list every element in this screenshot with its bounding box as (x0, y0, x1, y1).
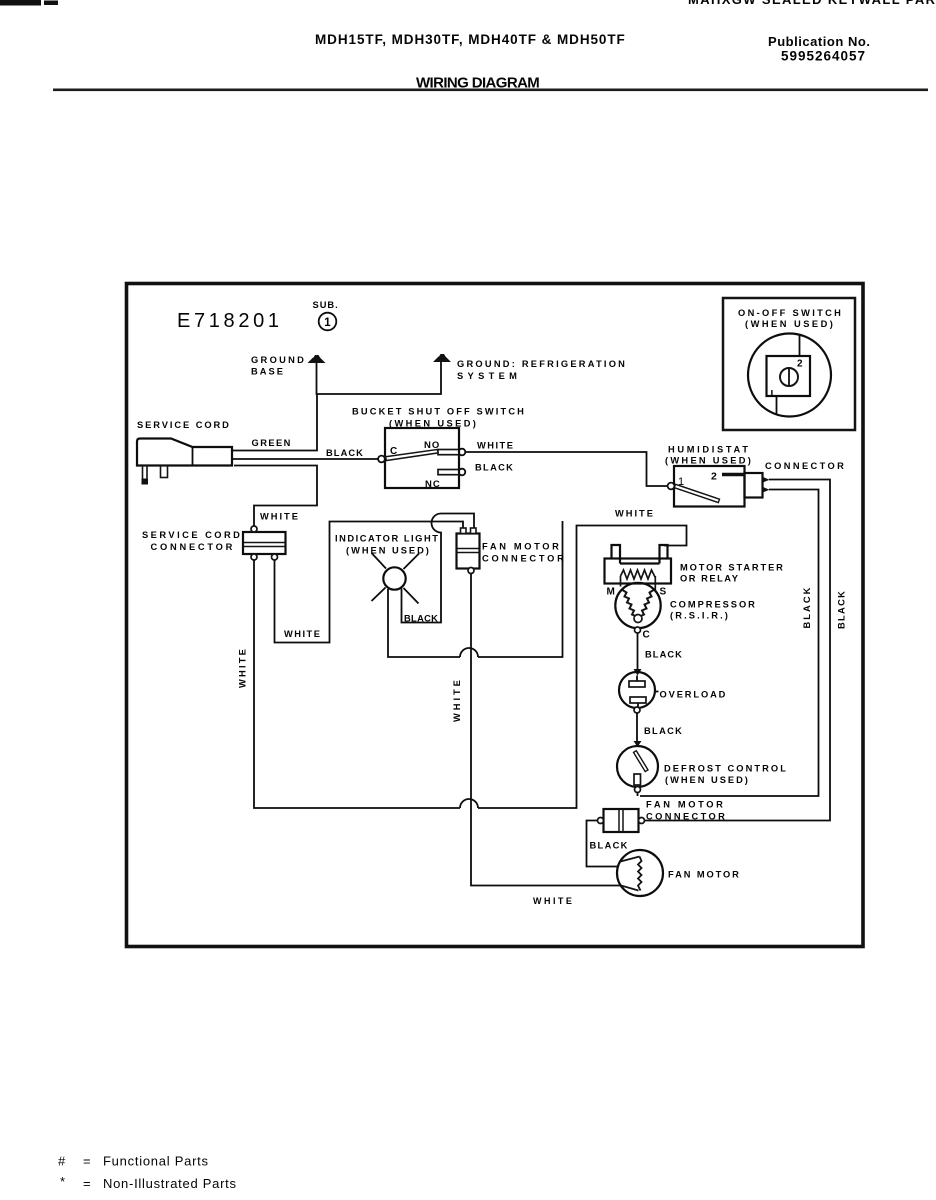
svg-text:OVERLOAD: OVERLOAD (660, 690, 727, 700)
svg-text:ON-OFF SWITCH: ON-OFF SWITCH (738, 308, 842, 318)
svg-text:GREEN: GREEN (252, 438, 292, 448)
svg-text:COMPRESSOR: COMPRESSOR (670, 600, 756, 610)
svg-text:2: 2 (711, 471, 717, 483)
svg-text:*: * (60, 1174, 65, 1189)
svg-text:NC: NC (425, 479, 441, 490)
svg-text:Functional Parts: Functional Parts (103, 1154, 209, 1169)
svg-text:Publication No.: Publication No. (768, 34, 870, 49)
svg-text:=: = (83, 1176, 91, 1191)
svg-text:WHITE: WHITE (284, 629, 321, 639)
svg-text:S: S (660, 587, 667, 598)
svg-text:SUB.: SUB. (313, 300, 339, 310)
svg-text:WHITE: WHITE (533, 896, 573, 906)
svg-text:E718201: E718201 (177, 310, 283, 332)
svg-text:HUMIDISTAT: HUMIDISTAT (668, 445, 749, 455)
svg-text:#: # (58, 1154, 66, 1169)
svg-text:5995264057: 5995264057 (781, 49, 865, 64)
svg-text:2: 2 (797, 359, 803, 370)
svg-text:WHITE: WHITE (477, 441, 514, 451)
svg-text:OR RELAY: OR RELAY (680, 574, 739, 584)
svg-text:GROUND: REFRIGERATION: GROUND: REFRIGERATION (457, 359, 626, 369)
svg-text:C: C (643, 630, 650, 641)
svg-text:(WHEN USED): (WHEN USED) (665, 775, 749, 785)
svg-text:FAN MOTOR: FAN MOTOR (482, 542, 560, 552)
svg-text:M: M (607, 587, 615, 598)
svg-text:=: = (83, 1154, 91, 1169)
svg-text:MOTOR STARTER: MOTOR STARTER (680, 563, 784, 573)
svg-text:BLACK: BLACK (802, 587, 812, 629)
svg-text:BLACK: BLACK (645, 650, 683, 660)
svg-text:CONNECTOR: CONNECTOR (482, 554, 565, 564)
svg-text:BUCKET SHUT OFF SWITCH: BUCKET SHUT OFF SWITCH (352, 407, 525, 417)
svg-text:NO: NO (424, 440, 440, 451)
svg-text:Non-Illustrated Parts: Non-Illustrated Parts (103, 1176, 237, 1191)
svg-text:DEFROST CONTROL: DEFROST CONTROL (664, 764, 787, 774)
svg-text:INDICATOR LIGHT: INDICATOR LIGHT (335, 534, 439, 544)
svg-text:BLACK: BLACK (837, 590, 847, 629)
svg-text:WHITE: WHITE (452, 679, 462, 722)
svg-text:CONNECTOR: CONNECTOR (765, 461, 845, 471)
svg-text:WHITE: WHITE (238, 648, 248, 688)
svg-text:BLACK: BLACK (590, 841, 629, 851)
svg-text:WHITE: WHITE (615, 509, 654, 519)
svg-text:SERVICE CORD: SERVICE CORD (137, 420, 230, 430)
svg-text:BLACK: BLACK (404, 614, 439, 624)
svg-text:(WHEN USED): (WHEN USED) (665, 456, 752, 466)
svg-text:BLACK: BLACK (326, 448, 364, 458)
svg-text:WHITE: WHITE (260, 512, 299, 522)
svg-text:CONNECTOR: CONNECTOR (151, 542, 234, 552)
svg-text:FAN MOTOR: FAN MOTOR (668, 870, 740, 880)
svg-text:(WHEN USED): (WHEN USED) (745, 319, 834, 329)
svg-text:BLACK: BLACK (475, 463, 514, 473)
svg-text:BASE: BASE (251, 367, 284, 377)
svg-text:SERVICE CORD: SERVICE CORD (142, 530, 241, 540)
svg-text:FAN MOTOR: FAN MOTOR (646, 800, 724, 810)
svg-text:BLACK: BLACK (644, 726, 683, 736)
svg-text:MAHXGW SEALED KEYWALL PAR: MAHXGW SEALED KEYWALL PAR (688, 0, 936, 7)
svg-text:L: L (771, 389, 777, 400)
svg-text:CONNECTOR: CONNECTOR (646, 812, 726, 822)
svg-text:(R.S.I.R.): (R.S.I.R.) (670, 611, 729, 621)
svg-text:1: 1 (324, 317, 331, 329)
svg-text:MDH15TF, MDH30TF, MDH40TF & MD: MDH15TF, MDH30TF, MDH40TF & MDH50TF (315, 32, 625, 47)
